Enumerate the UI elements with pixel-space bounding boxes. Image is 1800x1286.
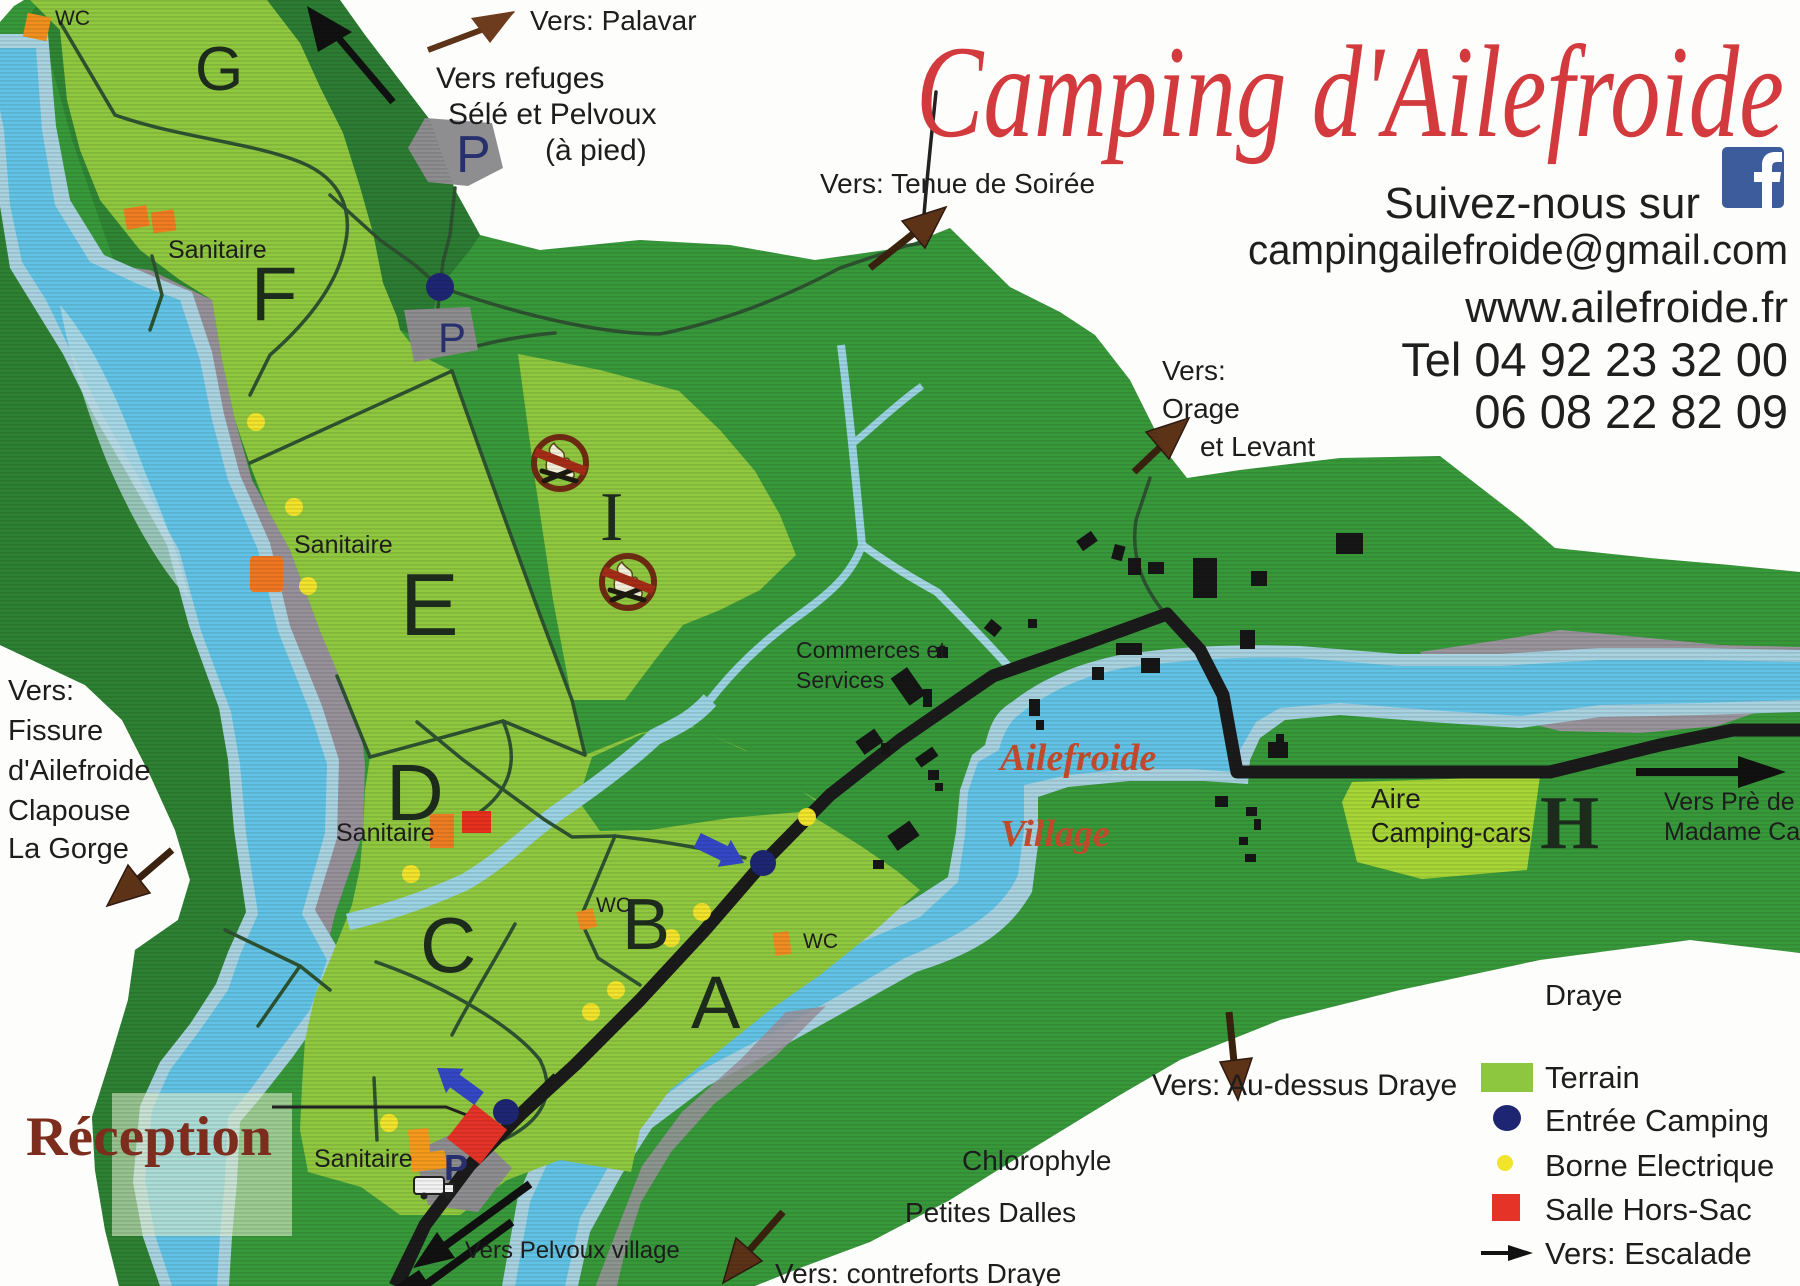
svg-text:WC: WC — [55, 7, 90, 30]
svg-text:(à pied): (à pied) — [545, 134, 647, 167]
svg-text:Camping-cars: Camping-cars — [1371, 817, 1531, 848]
svg-text:G: G — [195, 35, 243, 104]
svg-text:Camping d'Ailefroide: Camping d'Ailefroide — [916, 18, 1784, 165]
svg-text:Sanitaire: Sanitaire — [314, 1145, 413, 1173]
svg-text:Aire: Aire — [1371, 783, 1421, 814]
svg-text:P: P — [444, 1147, 468, 1188]
svg-text:F: F — [251, 252, 297, 337]
svg-text:Clapouse: Clapouse — [8, 795, 131, 827]
svg-text:La Gorge: La Gorge — [8, 833, 129, 865]
svg-text:Suivez-nous sur: Suivez-nous sur — [1385, 179, 1700, 228]
svg-text:et Levant: et Levant — [1200, 431, 1315, 462]
svg-text:Fissure: Fissure — [8, 715, 103, 747]
svg-text:Vers:: Vers: — [8, 675, 74, 707]
svg-text:Tel 04 92 23 32 00: Tel 04 92 23 32 00 — [1401, 333, 1788, 386]
svg-text:Draye: Draye — [1545, 980, 1622, 1012]
svg-text:Vers Prè de: Vers Prè de — [1664, 788, 1795, 816]
svg-text:H: H — [1540, 781, 1599, 865]
svg-text:Vers: contreforts Draye: Vers: contreforts Draye — [775, 1258, 1061, 1286]
svg-text:www.ailefroide.fr: www.ailefroide.fr — [1464, 283, 1788, 332]
svg-text:Madame Carle: Madame Carle — [1664, 818, 1800, 846]
svg-text:Sanitaire: Sanitaire — [336, 819, 435, 847]
svg-text:Orage: Orage — [1162, 393, 1240, 424]
svg-text:C: C — [420, 901, 476, 989]
svg-text:Entrée Camping: Entrée Camping — [1545, 1103, 1769, 1138]
svg-text:Vers: Palavar: Vers: Palavar — [530, 5, 697, 36]
svg-text:Terrain: Terrain — [1545, 1060, 1640, 1095]
svg-text:A: A — [691, 961, 741, 1044]
svg-text:Réception: Réception — [26, 1106, 272, 1168]
svg-text:Vers: Au-dessus Draye: Vers: Au-dessus Draye — [1152, 1069, 1457, 1102]
svg-text:I: I — [600, 479, 623, 556]
svg-text:Vers: Escalade: Vers: Escalade — [1545, 1236, 1752, 1271]
svg-text:Ailefroide: Ailefroide — [998, 737, 1156, 779]
svg-text:Salle Hors-Sac: Salle Hors-Sac — [1545, 1192, 1752, 1227]
svg-text:Vers:: Vers: — [1162, 355, 1226, 386]
svg-text:Sanitaire: Sanitaire — [168, 236, 267, 264]
svg-text:WC: WC — [596, 894, 631, 917]
svg-text:WC: WC — [803, 930, 838, 953]
svg-text:Village: Village — [1000, 813, 1110, 855]
svg-text:E: E — [400, 555, 459, 654]
svg-text:06 08 22 82 09: 06 08 22 82 09 — [1474, 385, 1788, 438]
svg-text:Vers Pelvoux village: Vers Pelvoux village — [465, 1237, 680, 1264]
svg-text:Borne Electrique: Borne Electrique — [1545, 1148, 1774, 1183]
svg-text:Vers: Tenue de Soirée: Vers: Tenue de Soirée — [820, 168, 1095, 199]
svg-text:Petites Dalles: Petites Dalles — [905, 1197, 1076, 1228]
svg-text:P: P — [456, 126, 491, 184]
svg-text:P: P — [438, 314, 466, 361]
svg-text:d'Ailefroide: d'Ailefroide — [8, 755, 151, 787]
svg-text:Services: Services — [796, 667, 884, 693]
svg-text:Commerces et: Commerces et — [796, 637, 946, 663]
svg-text:Vers refuges: Vers refuges — [436, 62, 604, 95]
svg-text:campingailefroide@gmail.com: campingailefroide@gmail.com — [1248, 226, 1788, 273]
svg-text:Sanitaire: Sanitaire — [294, 531, 393, 559]
svg-text:Chlorophyle: Chlorophyle — [962, 1145, 1111, 1176]
